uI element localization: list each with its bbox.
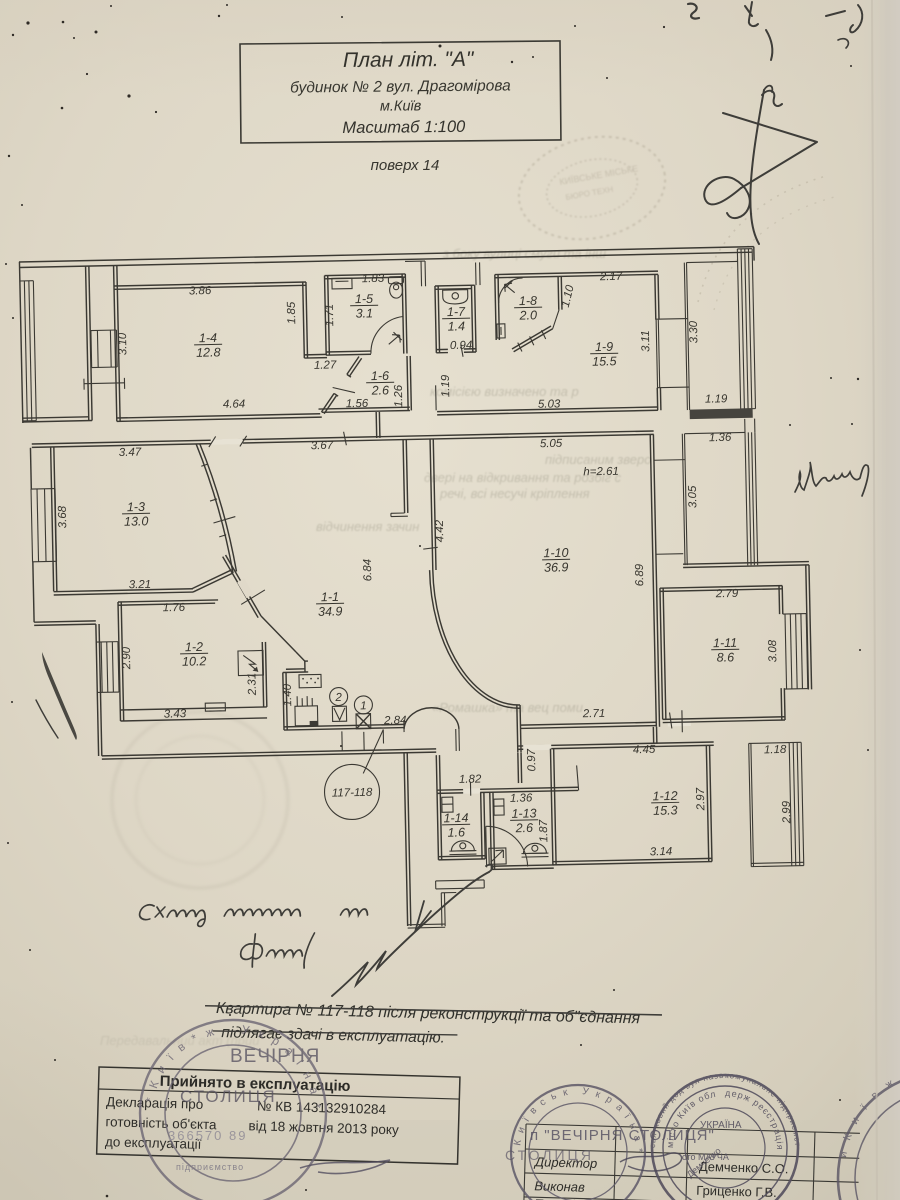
svg-text:6.89: 6.89 bbox=[634, 563, 646, 586]
svg-text:1-11: 1-11 bbox=[713, 636, 737, 651]
svg-text:1-1: 1-1 bbox=[321, 590, 339, 604]
svg-text:6.84: 6.84 bbox=[362, 559, 374, 582]
svg-text:2.31: 2.31 bbox=[246, 673, 258, 697]
svg-text:СТОЛИЦЯ: СТОЛИЦЯ bbox=[180, 1087, 277, 1106]
svg-text:1.36: 1.36 bbox=[709, 432, 732, 444]
svg-text:3.68: 3.68 bbox=[57, 505, 69, 528]
svg-text:13.0: 13.0 bbox=[124, 514, 149, 529]
svg-text:речі, всі несучі кріплення: речі, всі несучі кріплення bbox=[439, 486, 590, 501]
svg-text:2.17: 2.17 bbox=[599, 271, 623, 283]
svg-text:1.26: 1.26 bbox=[393, 384, 405, 407]
svg-text:0.94: 0.94 bbox=[450, 340, 473, 352]
svg-text:1-14: 1-14 bbox=[443, 811, 468, 826]
svg-text:h=2.61: h=2.61 bbox=[583, 466, 619, 479]
svg-text:3.30: 3.30 bbox=[688, 320, 700, 343]
svg-text:117-118: 117-118 bbox=[332, 787, 373, 800]
svg-text:Гриценко Г.В.: Гриценко Г.В. bbox=[696, 1183, 777, 1200]
svg-text:2.79: 2.79 bbox=[715, 588, 739, 600]
svg-text:2.6: 2.6 bbox=[370, 383, 389, 397]
svg-text:2.0: 2.0 bbox=[518, 308, 537, 322]
svg-text:3.08: 3.08 bbox=[767, 639, 779, 662]
svg-text:1-2: 1-2 bbox=[185, 640, 203, 654]
svg-text:3.1: 3.1 bbox=[355, 306, 373, 320]
svg-text:1.71: 1.71 bbox=[324, 304, 336, 327]
svg-text:8.6: 8.6 bbox=[717, 650, 735, 664]
svg-text:4.42: 4.42 bbox=[434, 519, 446, 542]
svg-text:СТОЛИЦЯ: СТОЛИЦЯ bbox=[505, 1147, 594, 1163]
svg-text:підписаним зверо: підписаним зверо bbox=[545, 452, 651, 467]
svg-text:3.10: 3.10 bbox=[117, 332, 129, 355]
svg-text:3.14: 3.14 bbox=[650, 846, 673, 858]
svg-text:34.9: 34.9 bbox=[318, 604, 343, 619]
svg-text:2.6: 2.6 bbox=[514, 821, 533, 835]
svg-text:1-5: 1-5 bbox=[355, 292, 373, 306]
svg-text:підприємство: підприємство bbox=[176, 1162, 244, 1172]
svg-text:1-12: 1-12 bbox=[652, 789, 677, 804]
svg-text:1-6: 1-6 bbox=[371, 369, 389, 383]
svg-text:2.99: 2.99 bbox=[781, 800, 793, 824]
svg-text:1.56: 1.56 bbox=[346, 398, 369, 410]
svg-text:2.71: 2.71 bbox=[582, 708, 606, 720]
svg-text:3.11: 3.11 bbox=[640, 330, 652, 352]
svg-text:0.97: 0.97 bbox=[526, 748, 538, 771]
svg-text:2.97: 2.97 bbox=[695, 787, 707, 811]
svg-text:2.90: 2.90 bbox=[121, 646, 133, 670]
svg-text:15.3: 15.3 bbox=[653, 803, 678, 818]
svg-text:1-9: 1-9 bbox=[595, 340, 613, 354]
svg-text:п "ВЕЧІРНЯ СТОЛИЦЯ": п "ВЕЧІРНЯ СТОЛИЦЯ" bbox=[530, 1127, 715, 1144]
svg-text:4.64: 4.64 bbox=[223, 398, 246, 410]
svg-text:1-10: 1-10 bbox=[543, 546, 568, 561]
svg-text:1: 1 bbox=[360, 700, 367, 712]
svg-text:366570 89: 366570 89 bbox=[168, 1128, 247, 1143]
svg-text:3.67: 3.67 bbox=[311, 440, 334, 452]
svg-text:м.Київ: м.Київ bbox=[380, 98, 422, 114]
svg-text:1-7: 1-7 bbox=[447, 305, 466, 319]
svg-text:1.85: 1.85 bbox=[286, 301, 298, 324]
svg-text:комісією визначено та р: комісією визначено та р bbox=[430, 384, 579, 399]
svg-text:1.4: 1.4 bbox=[447, 319, 465, 333]
svg-text:3.47: 3.47 bbox=[119, 446, 142, 458]
svg-text:1.76: 1.76 bbox=[163, 602, 186, 614]
svg-text:1.6: 1.6 bbox=[447, 825, 465, 839]
svg-text:1-13: 1-13 bbox=[511, 806, 536, 821]
svg-text:3.86: 3.86 bbox=[189, 285, 212, 297]
svg-text:1-8: 1-8 bbox=[519, 294, 537, 308]
svg-text:2.84: 2.84 bbox=[383, 715, 407, 727]
svg-text:План літ. "А": План літ. "А" bbox=[343, 48, 475, 72]
svg-text:3.21: 3.21 bbox=[129, 579, 152, 591]
svg-text:1-4: 1-4 bbox=[199, 331, 217, 345]
svg-text:1.83: 1.83 bbox=[362, 273, 385, 285]
svg-text:4.45: 4.45 bbox=[633, 744, 656, 756]
svg-text:1.19: 1.19 bbox=[440, 374, 452, 397]
svg-text:ВЕЧІРНЯ: ВЕЧІРНЯ bbox=[230, 1046, 320, 1067]
svg-text:Масштаб 1:100: Масштаб 1:100 bbox=[342, 118, 466, 137]
svg-text:відчинення зачин: відчинення зачин bbox=[316, 519, 419, 534]
svg-text:1.40: 1.40 bbox=[282, 683, 294, 706]
svg-text:1.27: 1.27 bbox=[314, 359, 337, 371]
svg-text:15.5: 15.5 bbox=[592, 354, 617, 369]
svg-text:поверх 14: поверх 14 bbox=[371, 157, 440, 174]
svg-text:1.87: 1.87 bbox=[538, 819, 550, 842]
svg-text:2: 2 bbox=[334, 692, 342, 704]
svg-text:3.05: 3.05 bbox=[687, 485, 699, 508]
svg-text:36.9: 36.9 bbox=[544, 560, 569, 575]
svg-text:1.18: 1.18 bbox=[764, 744, 787, 756]
svg-text:1.19: 1.19 bbox=[705, 393, 728, 405]
svg-text:5.05: 5.05 bbox=[540, 438, 563, 450]
svg-text:10.2: 10.2 bbox=[182, 654, 207, 669]
svg-text:12.8: 12.8 bbox=[196, 345, 221, 360]
svg-text:Виконав: Виконав bbox=[534, 1178, 585, 1194]
svg-text:1-3: 1-3 bbox=[127, 500, 145, 514]
svg-text:3.43: 3.43 bbox=[164, 708, 187, 720]
svg-text:1.36: 1.36 bbox=[510, 792, 533, 804]
svg-text:1.82: 1.82 bbox=[459, 773, 482, 785]
svg-text:будинок № 2 вул. Драгомірова: будинок № 2 вул. Драгомірова bbox=[290, 77, 511, 96]
